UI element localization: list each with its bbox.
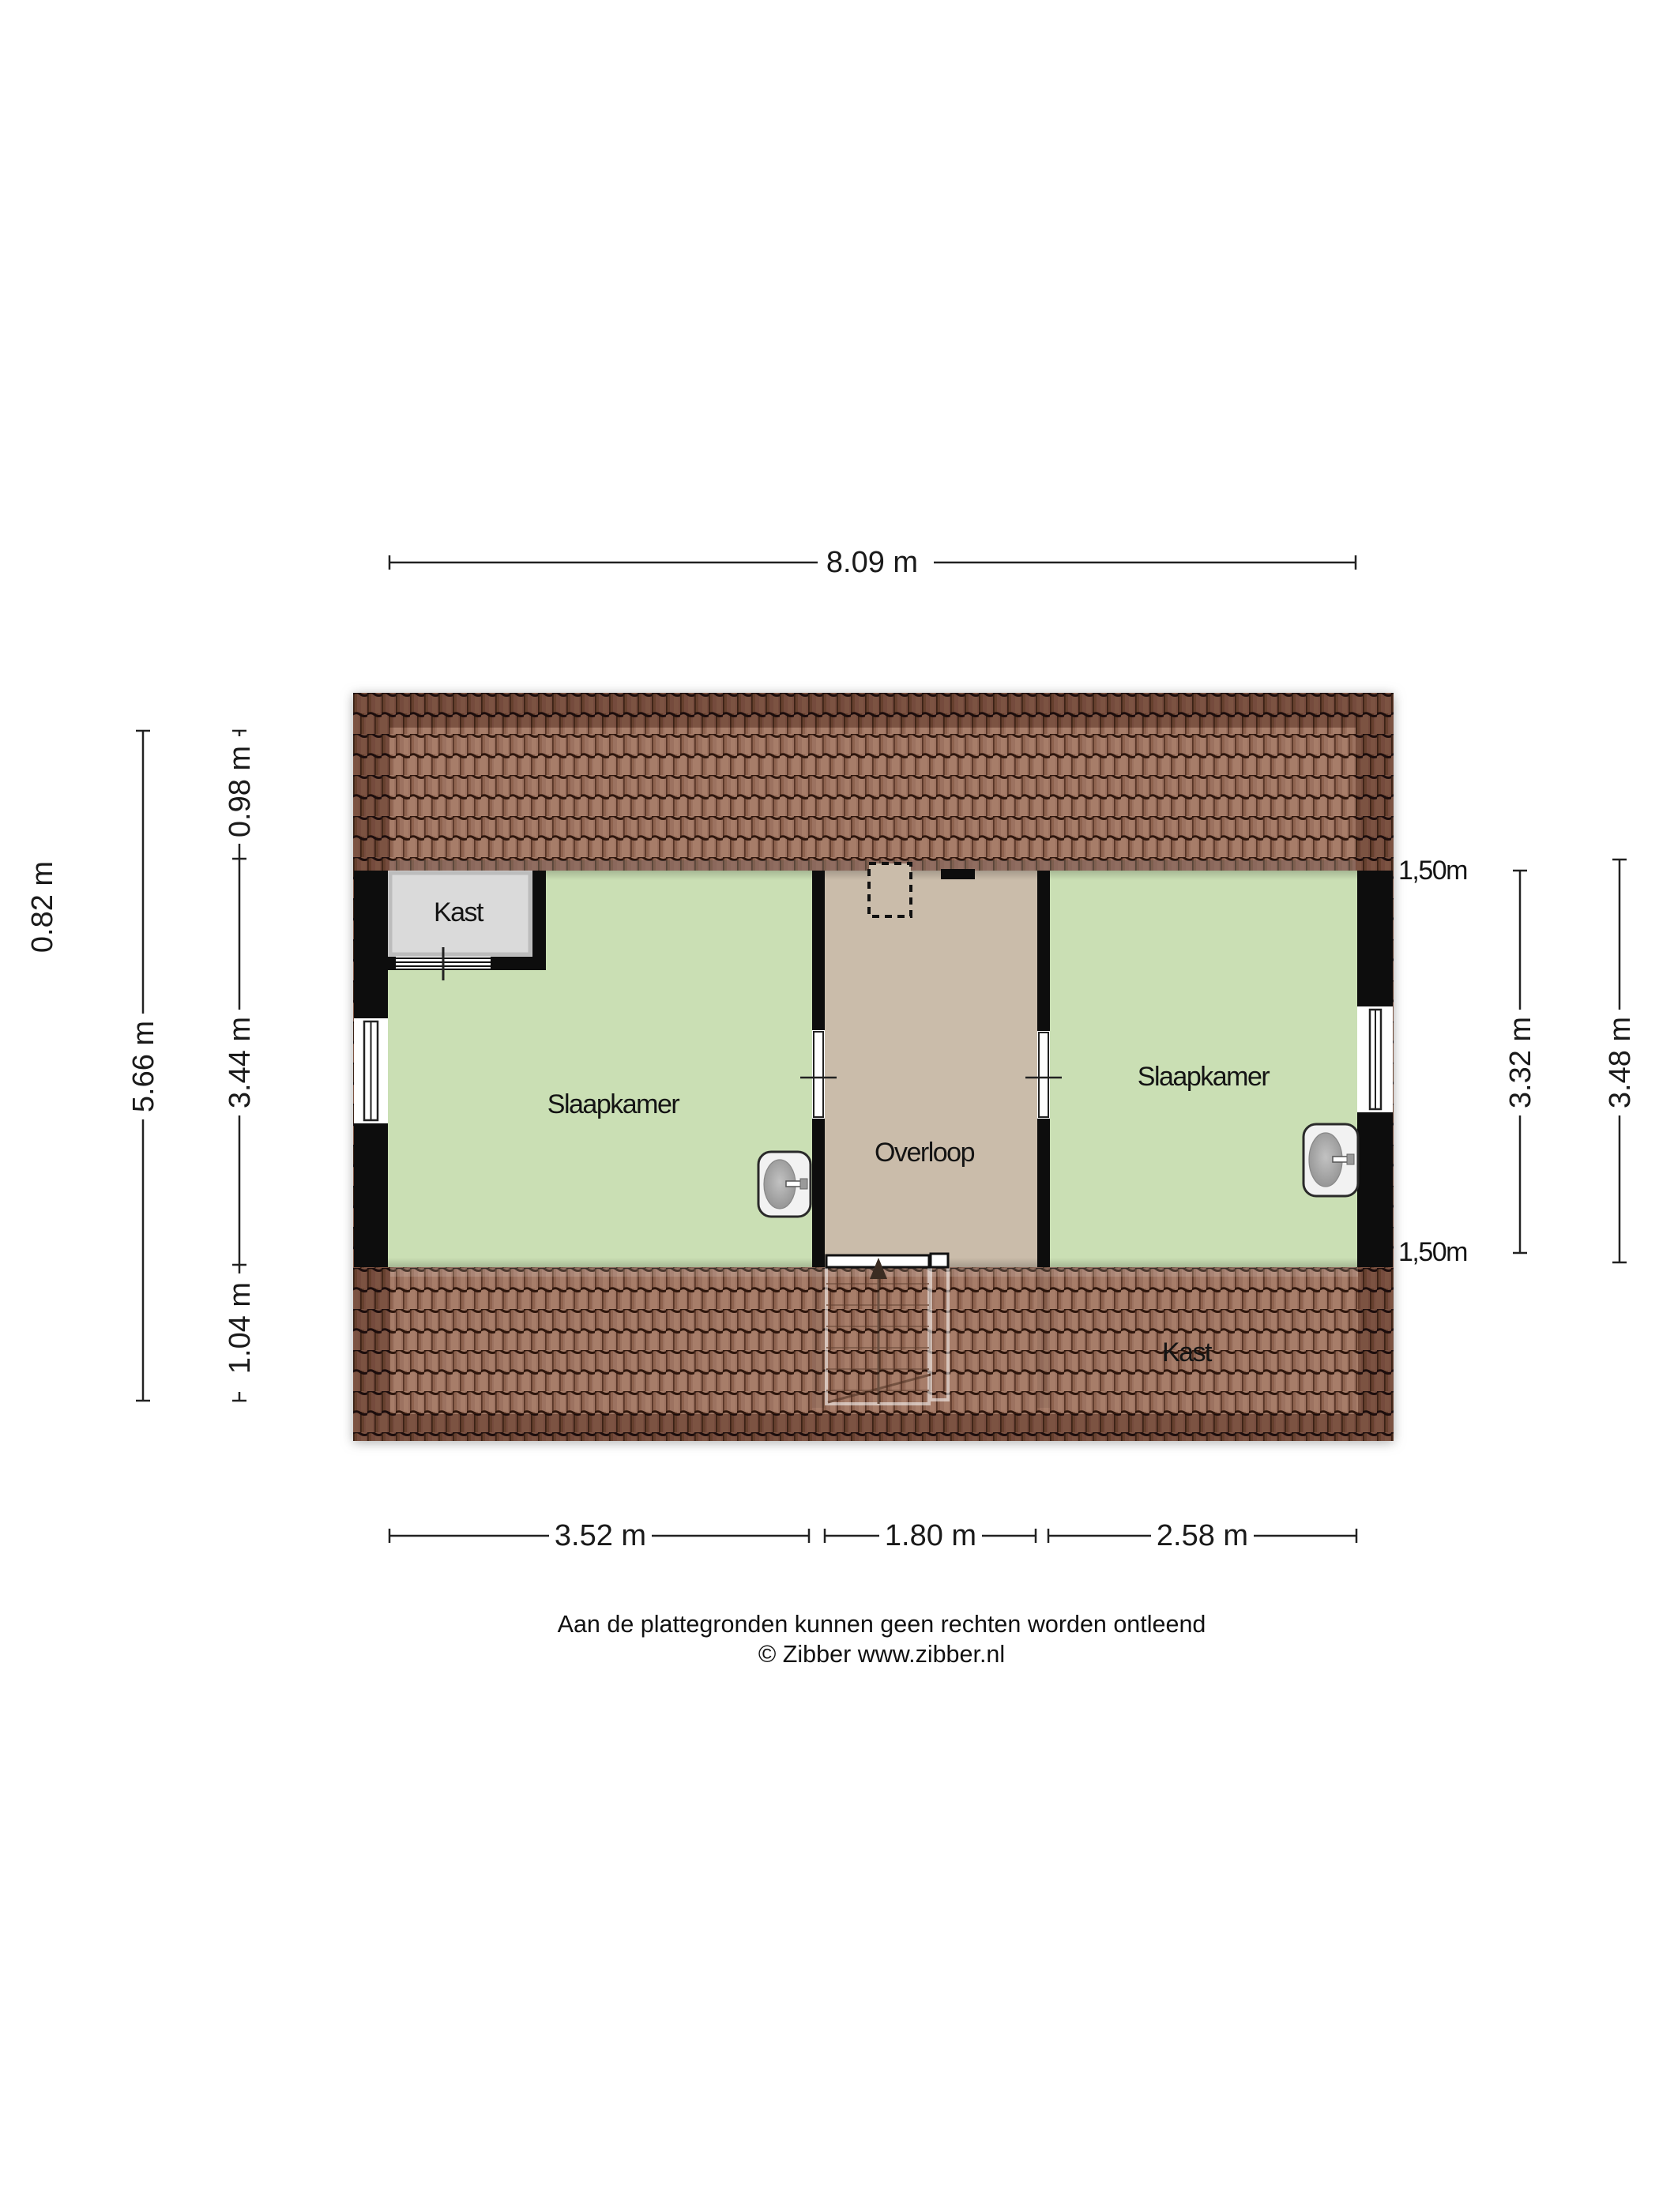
svg-text:3.44 m: 3.44 m [224,1017,257,1108]
svg-text:1,50m: 1,50m [1398,856,1467,886]
svg-text:8.09 m: 8.09 m [826,546,918,579]
svg-text:3.32 m: 3.32 m [1504,1017,1537,1108]
svg-text:© Zibber www.zibber.nl: © Zibber www.zibber.nl [758,1641,1005,1668]
svg-text:Kast: Kast [1162,1337,1213,1367]
svg-text:1.80 m: 1.80 m [885,1519,976,1552]
svg-text:Kast: Kast [434,897,484,927]
svg-text:Slaapkamer: Slaapkamer [547,1089,680,1119]
svg-text:0.82 m: 0.82 m [26,861,59,953]
svg-text:Aan de plattegronden kunnen ge: Aan de plattegronden kunnen geen rechten… [558,1611,1206,1638]
svg-text:0.98 m: 0.98 m [224,746,257,837]
svg-text:1,50m: 1,50m [1398,1237,1467,1267]
svg-text:1.04 m: 1.04 m [224,1282,257,1374]
svg-text:2.58 m: 2.58 m [1157,1519,1248,1552]
svg-text:5.66 m: 5.66 m [127,1021,160,1112]
svg-text:Overloop: Overloop [875,1138,975,1168]
svg-text:3.48 m: 3.48 m [1604,1017,1637,1108]
svg-text:Slaapkamer: Slaapkamer [1138,1062,1270,1092]
svg-text:3.52 m: 3.52 m [555,1519,646,1552]
